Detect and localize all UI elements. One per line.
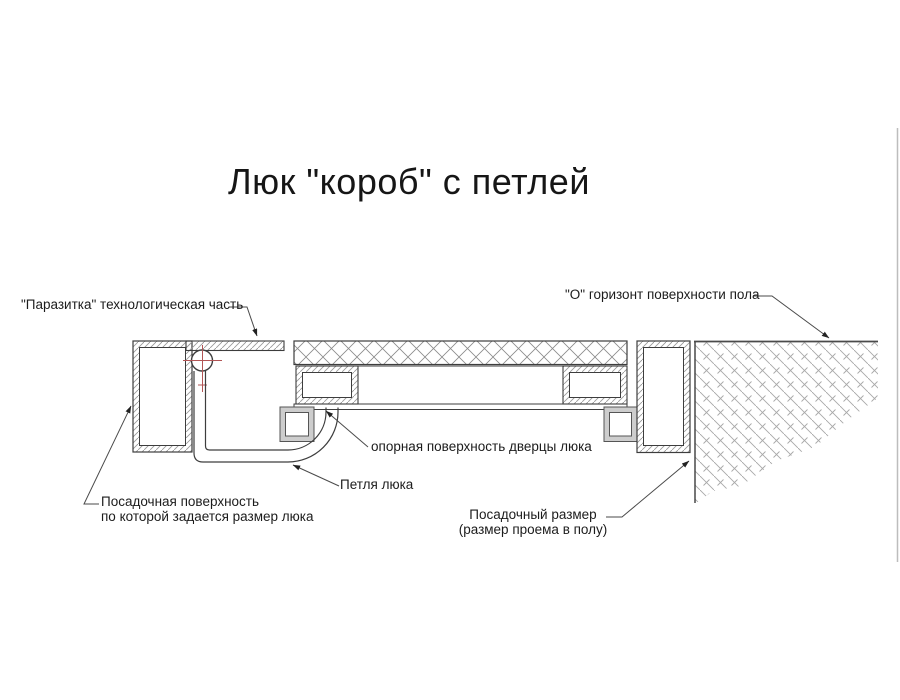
door-right-profile xyxy=(563,366,627,404)
label-seating-surface: Посадочная поверхность по которой задает… xyxy=(101,494,314,524)
hinge-block-right xyxy=(604,407,637,442)
label-floor-horizon: "О" горизонт поверхности пола xyxy=(565,287,760,302)
leader-posadochnaya xyxy=(84,406,131,504)
door-bottom-sheet xyxy=(294,404,627,410)
floor-hatch-area xyxy=(694,342,878,505)
right-frame-profile xyxy=(637,341,690,453)
leader-petlya xyxy=(293,465,339,486)
hinge-block-left xyxy=(280,407,314,442)
label-door-support-surface: опорная поверхность дверцы люка xyxy=(371,439,592,454)
label-seating-size-line1: Посадочный размер xyxy=(458,507,608,522)
diagram-page: Люк "короб" с петлей "Паразитка" техноло… xyxy=(0,0,900,700)
label-seating-size: Посадочный размер (размер проема в полу) xyxy=(458,507,608,537)
leader-horizon xyxy=(753,296,829,338)
door-top-band xyxy=(294,341,627,365)
door-left-profile xyxy=(296,366,358,404)
label-seating-surface-line1: Посадочная поверхность xyxy=(101,494,314,509)
leader-opornaya xyxy=(326,411,368,447)
label-hatch-hinge: Петля люка xyxy=(340,477,413,492)
label-seating-size-line2: (размер проема в полу) xyxy=(458,522,608,537)
hatch-section-drawing xyxy=(0,0,900,700)
parasitka-strip xyxy=(186,341,284,351)
label-parazitka: "Паразитка" технологическая часть xyxy=(21,297,243,312)
left-frame-profile xyxy=(133,341,192,452)
leader-posadochny xyxy=(606,461,689,517)
label-seating-surface-line2: по которой задается размер люка xyxy=(101,509,314,524)
page-title: Люк "короб" с петлей xyxy=(228,162,590,202)
